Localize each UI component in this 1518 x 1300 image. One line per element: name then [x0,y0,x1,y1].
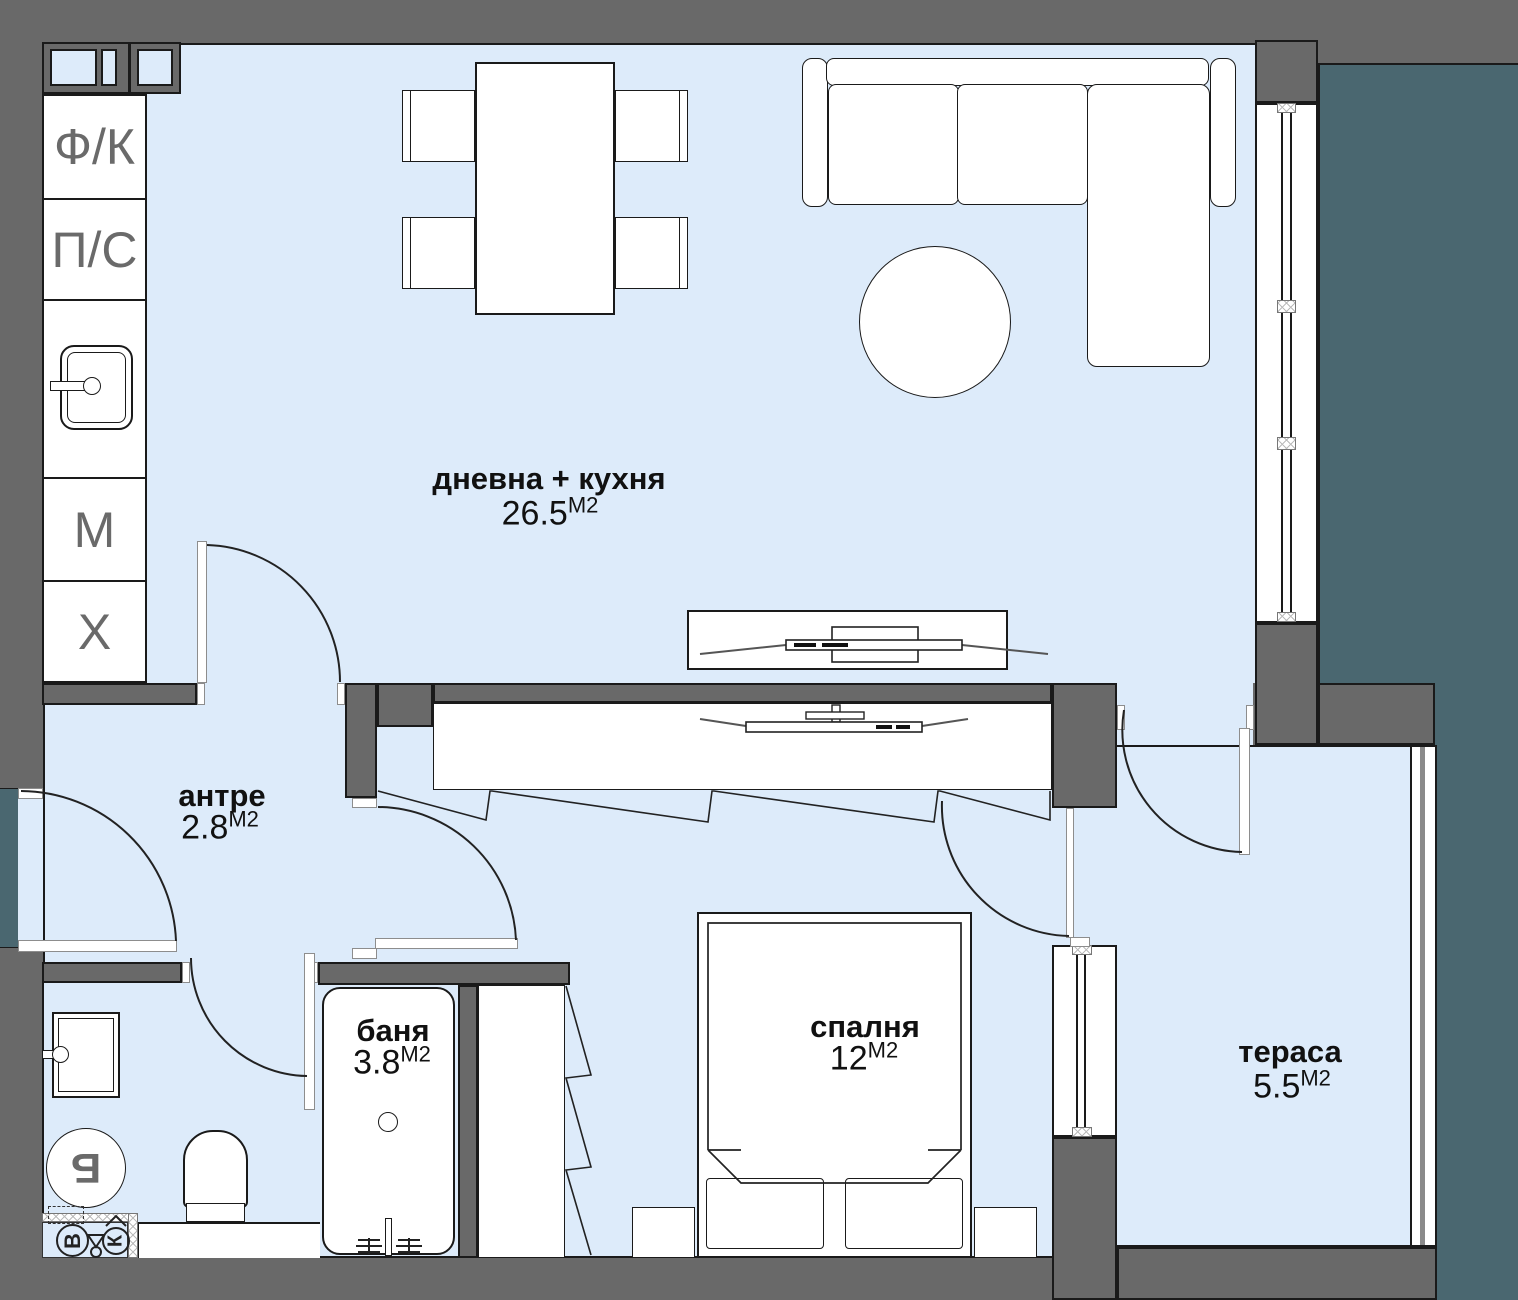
living-terrace-door-leaf [1239,728,1250,855]
bedroom-wardrobe [478,985,565,1258]
bath-area: 3.8М2 [353,1041,431,1082]
kitchen-cell-label: Ф/К [54,118,135,176]
chair-seat [410,217,475,289]
wall-entry-corner [377,683,433,727]
kitchen-faucet-knob [83,377,101,395]
sofa-back [826,58,1209,86]
utility-dashed-box [48,1206,84,1224]
nightstand [632,1207,695,1258]
wall-bath-bedroom [458,985,478,1258]
area-unit: М2 [228,806,259,831]
wall-bath-top-left [42,962,182,983]
hall-corridor-door-leaf [375,938,518,949]
area-unit: М2 [868,1037,899,1062]
door-jamb [352,948,377,959]
wall-bedroom-right-chunk [1052,683,1117,808]
area-unit: М2 [568,492,599,517]
terrace-floor [1117,745,1410,1247]
kitchen-cell-label: П/С [52,221,138,279]
entry-door-gap-floor [18,788,43,948]
sofa-left-armrest [802,58,828,207]
living-room-area: 26.5М2 [502,492,599,533]
shaft-window [50,49,97,86]
sofa-right-armrest [1210,58,1236,207]
nightstand [974,1207,1037,1258]
area-value: 2.8 [181,809,228,847]
area-value: 12 [830,1040,868,1078]
window-pad [1072,1127,1092,1137]
entry-hall-area: 2.8М2 [181,806,259,847]
area-value: 3.8 [353,1044,400,1082]
bed-pillow [845,1178,963,1249]
sofa-chaise [1087,84,1210,367]
round-rug [859,246,1011,398]
tv-cabinet [687,610,1008,670]
bath-floor-strip [138,1222,320,1258]
bedroom-terrace-door-leaf [1066,808,1074,938]
washbasin-faucet-knob [52,1046,69,1063]
wall-terrace-bottom [1117,1247,1437,1300]
window-pad [1277,300,1296,313]
dining-table [475,62,615,315]
terrace-passage-floor [1117,683,1253,745]
area-unit: М2 [1300,1065,1331,1090]
living-entry-door-leaf [197,541,207,683]
bedroom-dresser [433,703,1052,790]
wall-below-bedroom-window [1052,1137,1117,1300]
area-value: 5.5 [1253,1068,1300,1106]
kitchen-cell-dishwasher: П/С [44,198,145,299]
wall-bath-top-right [318,962,570,985]
exterior-entry-strip [0,788,18,948]
kitchen-cell-range: Х [44,580,145,681]
door-jamb [18,788,43,799]
bedroom-area: 12М2 [830,1037,898,1078]
kitchen-cell-fridge: Ф/К [44,96,145,198]
area-unit: М2 [400,1041,431,1066]
door-jamb [352,798,377,808]
sofa-seat-cushion [957,84,1088,205]
door-jamb [1246,705,1254,730]
toilet-tank [186,1203,245,1222]
living-room-window-glass [1281,108,1292,618]
wall-right-upper [1255,40,1318,103]
door-jamb [1117,705,1125,730]
wall-entry-pier [345,683,377,798]
window-pad [1277,103,1296,113]
terrace-railing-line [1420,747,1425,1245]
exterior-right-area [1318,63,1518,745]
boiler-label: Б [71,1144,101,1192]
wall-under-kitchen [42,683,197,705]
chair-seat [615,90,680,162]
bed-pillow [706,1178,824,1249]
window-pad [1277,612,1296,622]
door-jamb [182,962,190,983]
exterior-right-lower-area [1437,745,1518,1300]
shaft-divider [128,42,131,94]
bedroom-window-glass [1076,952,1086,1130]
terrace-area: 5.5М2 [1253,1065,1331,1106]
hatch-strip-vertical [128,1213,138,1258]
toilet-bowl [183,1130,248,1208]
kitchen-cell-label: М [74,501,116,559]
floor-plan: Ф/К П/С М Х Б В К [0,0,1518,1300]
door-jamb [197,683,205,705]
bath-door-leaf [304,953,315,1110]
water-symbol-label: В [60,1233,86,1249]
kitchen-cell-label: Х [78,603,111,661]
door-jamb [337,683,345,705]
bathtub-spout [385,1218,392,1256]
door-jamb [1070,937,1090,947]
sofa-seat-cushion [828,84,959,205]
wall-right-lower [1255,623,1318,745]
bathtub-drain [378,1112,398,1132]
chair-seat [615,217,680,289]
sewer-symbol-label: К [105,1235,128,1247]
kitchen-cell-washer: М [44,477,145,580]
area-value: 26.5 [502,495,568,533]
wall-top-left-shaft-block [42,42,181,94]
chair-seat [410,90,475,162]
shaft-window [101,49,117,86]
wall-bedroom-top-band [433,683,1052,703]
shaft-window [137,49,173,86]
front-door-leaf [18,940,177,952]
window-pad [1277,437,1296,450]
wall-right-step [1318,683,1435,745]
